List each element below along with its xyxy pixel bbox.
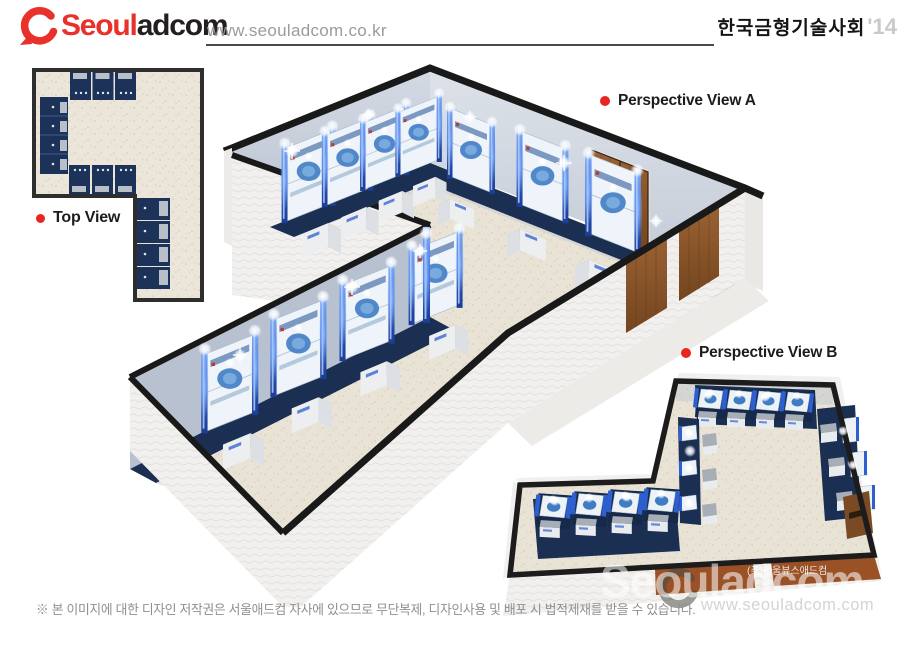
design-sheet: { "header": { "logo": { "brand_red": "Se… xyxy=(0,0,900,651)
website-url: www.seouladcom.co.kr xyxy=(207,21,387,41)
red-bullet-icon xyxy=(600,96,610,106)
top-view-label: Top View xyxy=(36,209,120,227)
seouladcom-logo-icon xyxy=(17,7,61,51)
perspective-b-label-text: Perspective View B xyxy=(699,344,837,362)
perspective-b-label: Perspective View B xyxy=(681,344,837,362)
watermark-company: (주)서울뷰스애드컴 xyxy=(747,562,827,577)
brand-logo-primary: Seoul xyxy=(61,9,137,42)
room-a-left-edge xyxy=(224,148,232,246)
red-bullet-icon xyxy=(36,214,45,223)
perspective-a-label: Perspective View A xyxy=(600,92,756,110)
perspective-a-label-text: Perspective View A xyxy=(618,92,756,110)
room-a-wall-corner-edge xyxy=(745,188,763,291)
event-title: 한국금형기술사회'14 xyxy=(702,13,897,40)
event-year: '14 xyxy=(867,14,897,39)
event-title-text: 한국금형기술사회 xyxy=(717,18,865,39)
copyright-notice: ※ 본 이미지에 대한 디자인 저작권은 서울애드컴 자사에 있으므로 무단복제… xyxy=(36,599,866,618)
plan-booth-column-left xyxy=(40,97,68,174)
top-view-label-text: Top View xyxy=(53,209,120,227)
brand-logo: Seouladcom xyxy=(61,9,227,43)
header-divider xyxy=(206,44,714,46)
red-bullet-icon xyxy=(681,348,691,358)
